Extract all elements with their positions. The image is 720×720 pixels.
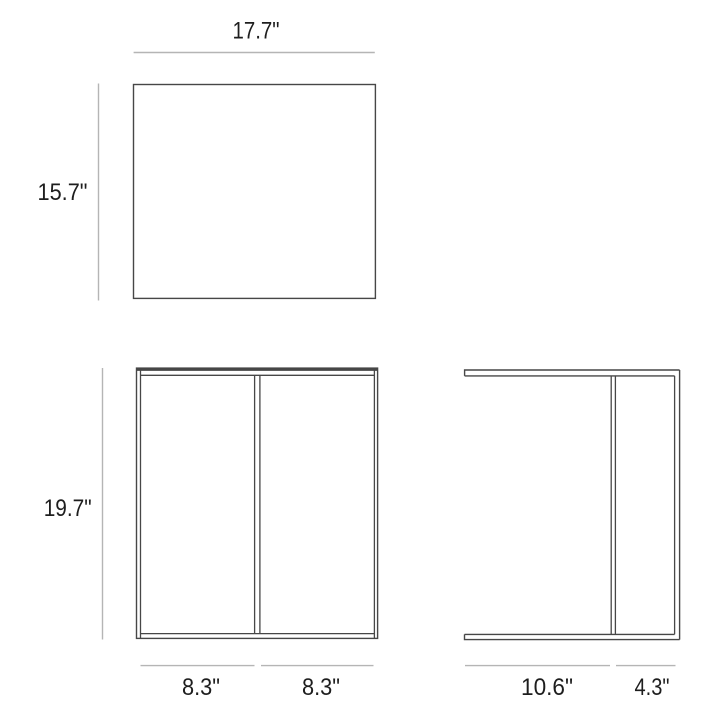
svg-text:17.7": 17.7" [233, 18, 280, 45]
svg-text:4.3": 4.3" [635, 674, 670, 701]
svg-text:19.7": 19.7" [44, 495, 92, 522]
svg-text:8.3": 8.3" [302, 674, 340, 701]
svg-text:8.3": 8.3" [182, 674, 220, 701]
svg-text:10.6": 10.6" [521, 674, 573, 701]
svg-text:15.7": 15.7" [38, 179, 88, 206]
